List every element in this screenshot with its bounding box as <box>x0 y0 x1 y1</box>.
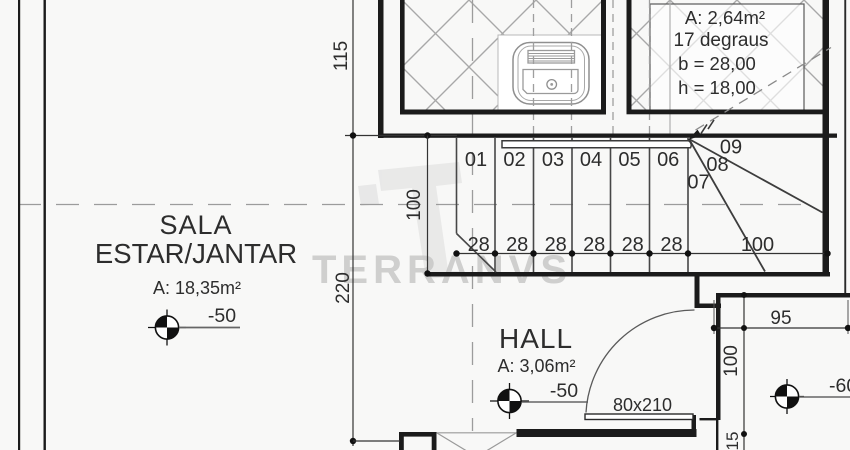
svg-text:17 degraus: 17 degraus <box>673 30 768 51</box>
svg-text:28: 28 <box>506 234 528 256</box>
svg-text:02: 02 <box>503 149 525 171</box>
svg-text:h = 18,00: h = 18,00 <box>678 77 756 98</box>
svg-text:220: 220 <box>333 272 354 304</box>
svg-text:09: 09 <box>720 137 742 159</box>
svg-text:HALL: HALL <box>499 323 573 354</box>
svg-text:28: 28 <box>583 234 605 256</box>
svg-text:03: 03 <box>542 149 564 171</box>
svg-text:-50: -50 <box>208 305 236 327</box>
svg-text:01: 01 <box>465 149 487 171</box>
svg-text:115: 115 <box>331 41 352 71</box>
svg-text:95: 95 <box>770 308 791 329</box>
svg-text:06: 06 <box>657 149 679 171</box>
svg-text:28: 28 <box>468 234 490 256</box>
svg-text:15: 15 <box>723 432 742 450</box>
svg-text:b = 28,00: b = 28,00 <box>678 53 756 74</box>
svg-text:80x210: 80x210 <box>613 395 672 415</box>
svg-text:A: 3,06m²: A: 3,06m² <box>497 356 575 376</box>
svg-text:SALA: SALA <box>159 210 232 240</box>
svg-text:-60: -60 <box>829 375 850 397</box>
svg-text:28: 28 <box>660 234 682 256</box>
svg-text:28: 28 <box>622 234 644 256</box>
svg-text:05: 05 <box>618 149 640 171</box>
svg-text:100: 100 <box>404 189 425 221</box>
svg-text:04: 04 <box>580 149 602 171</box>
svg-text:A: 18,35m²: A: 18,35m² <box>153 278 241 298</box>
svg-text:-50: -50 <box>550 380 578 402</box>
svg-text:A: 2,64m²: A: 2,64m² <box>685 7 765 28</box>
svg-text:28: 28 <box>545 234 567 256</box>
svg-text:100: 100 <box>741 234 774 256</box>
svg-text:ESTAR/JANTAR: ESTAR/JANTAR <box>95 238 297 269</box>
svg-text:100: 100 <box>721 345 742 377</box>
